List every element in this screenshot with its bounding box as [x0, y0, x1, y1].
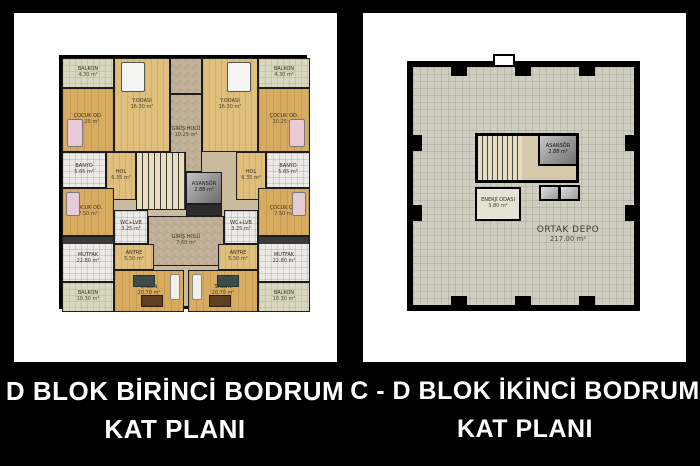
room-antre-right: ANTRE 5.50 m² — [218, 244, 258, 270]
room-enerji-odasi: ENERJİ ODASI 3.80 m² — [475, 187, 521, 221]
room-y-odasi-left: Y.ODASI 16.30 m² — [114, 58, 170, 152]
room-area: 2.88 m² — [548, 150, 568, 156]
room-cocuk-od-mid-right: ÇOCUK OD. 7.50 m² — [258, 188, 310, 236]
floor-plan-d-blok-birinci-bodrum: BALKON 4.30 m² BALKON 4.30 m² ÇOCUK OD. … — [59, 55, 307, 309]
wall-pillar — [451, 296, 467, 305]
room-asansor: ASANSÖR 2.88 m² — [186, 172, 222, 204]
room-antre-left: ANTRE 5.50 m² — [114, 244, 154, 270]
wall-pillar — [451, 67, 467, 76]
caption-left-line1: D BLOK BİRİNCİ BODRUM — [0, 372, 350, 410]
room-area: 7.60 m² — [176, 241, 196, 247]
room-area: 22.80 m² — [77, 259, 100, 265]
room-area: 3.80 m² — [488, 204, 508, 210]
room-area: 2.88 m² — [194, 188, 214, 194]
kitchen-counter — [259, 237, 309, 244]
elevator-door-box — [539, 185, 560, 201]
staircase — [136, 152, 186, 210]
wall-pillar — [625, 205, 634, 221]
wall-pillar — [515, 296, 531, 305]
bed-icon — [67, 119, 83, 147]
room-mutfak-right: MUTFAK 22.80 m² — [258, 236, 310, 282]
room-area: 3.25 m² — [121, 227, 141, 233]
staircase — [478, 136, 522, 180]
room-area: 4.30 m² — [78, 73, 98, 79]
room-area: 217.00 m² — [513, 235, 623, 243]
right-panel: ASANSÖR 2.88 m² ENERJİ ODASI 3.80 m² ORT… — [363, 13, 686, 362]
room-giris-holu-lower: GİRİŞ HOLÜ 7.60 m² — [148, 216, 224, 266]
room-balkon-bottom-left: BALKON 10.30 m² — [62, 282, 114, 312]
room-banyo-left: BANYO 5.65 m² — [62, 152, 106, 188]
room-balkon-bottom-right: BALKON 10.30 m² — [258, 282, 310, 312]
room-balkon-top-left: BALKON 4.30 m² — [62, 58, 114, 88]
rug-icon — [217, 275, 239, 287]
room-area: 7.50 m² — [78, 212, 98, 218]
dining-table-icon — [141, 295, 163, 307]
room-area: 10.30 m² — [273, 297, 296, 303]
room-area: 10.25 m² — [175, 133, 198, 139]
room-balkon-top-right: BALKON 4.30 m² — [258, 58, 310, 88]
room-area: 5.65 m² — [74, 170, 94, 176]
room-banyo-right: BANYO 5.65 m² — [266, 152, 310, 188]
elevator-shaft — [186, 204, 222, 216]
entry-hatch — [493, 54, 515, 67]
room-area: 4.30 m² — [274, 73, 294, 79]
bed-icon — [289, 119, 305, 147]
room-area: 5.65 m² — [278, 170, 298, 176]
room-asansor: ASANSÖR 2.88 m² — [538, 136, 576, 166]
caption-left-line2: KAT PLANI — [0, 410, 350, 448]
room-area: 22.80 m² — [273, 259, 296, 265]
bed-icon — [121, 62, 145, 92]
bed-icon — [66, 192, 80, 216]
kitchen-counter — [63, 237, 113, 244]
stair-core: ASANSÖR 2.88 m² — [475, 133, 579, 183]
room-area: 16.30 m² — [219, 105, 242, 111]
room-y-odasi-right: Y.ODASI 16.30 m² — [202, 58, 258, 152]
wall-pillar — [413, 205, 422, 221]
room-area: 5.50 m² — [228, 257, 248, 263]
floor-plan-cd-blok-ikinci-bodrum: ASANSÖR 2.88 m² ENERJİ ODASI 3.80 m² ORT… — [407, 61, 640, 311]
dining-table-icon — [209, 295, 231, 307]
room-cocuk-od-top-left: ÇOCUK OD. 10.25 m² — [62, 88, 114, 152]
room-label: ORTAK DEPO — [513, 225, 623, 235]
caption-left: D BLOK BİRİNCİ BODRUM KAT PLANI — [0, 372, 350, 448]
room-mutfak-left: MUTFAK 22.80 m² — [62, 236, 114, 282]
wall-pillar — [579, 67, 595, 76]
wall-pillar — [515, 67, 531, 76]
room-area: 3.25 m² — [231, 227, 251, 233]
room-vestibule — [170, 58, 202, 94]
caption-right-line1: C - D BLOK İKİNCİ BODRUM — [350, 372, 700, 410]
elevator-door-box — [559, 185, 580, 201]
room-area: 5.50 m² — [124, 257, 144, 263]
room-salon-right: SALON 20.70 m² — [188, 270, 258, 312]
room-area: 6.35 m² — [111, 176, 131, 182]
room-salon-left: SALON 20.70 m² — [114, 270, 184, 312]
wall-pillar — [579, 296, 595, 305]
room-area: 16.30 m² — [131, 105, 154, 111]
rug-icon — [133, 275, 155, 287]
sofa-icon — [192, 274, 202, 300]
bed-icon — [292, 192, 306, 216]
room-ortak-depo: ORTAK DEPO 217.00 m² — [513, 225, 623, 243]
room-cocuk-od-top-right: ÇOCUK OD. 10.25 m² — [258, 88, 310, 152]
room-area: 7.50 m² — [274, 212, 294, 218]
sofa-icon — [170, 274, 180, 300]
caption-right-line2: KAT PLANI — [350, 410, 700, 448]
room-area: 6.35 m² — [241, 176, 261, 182]
room-area: 10.30 m² — [77, 297, 100, 303]
room-wc-lvb-right: WC+LVB 3.25 m² — [224, 210, 258, 244]
room-cocuk-od-mid-left: ÇOCUK OD. 7.50 m² — [62, 188, 114, 236]
left-panel: BALKON 4.30 m² BALKON 4.30 m² ÇOCUK OD. … — [14, 13, 337, 362]
room-wc-lvb-left: WC+LVB 3.25 m² — [114, 210, 148, 244]
bed-icon — [227, 62, 251, 92]
caption-right: C - D BLOK İKİNCİ BODRUM KAT PLANI — [350, 372, 700, 448]
wall-pillar — [625, 135, 634, 151]
wall-pillar — [413, 135, 422, 151]
